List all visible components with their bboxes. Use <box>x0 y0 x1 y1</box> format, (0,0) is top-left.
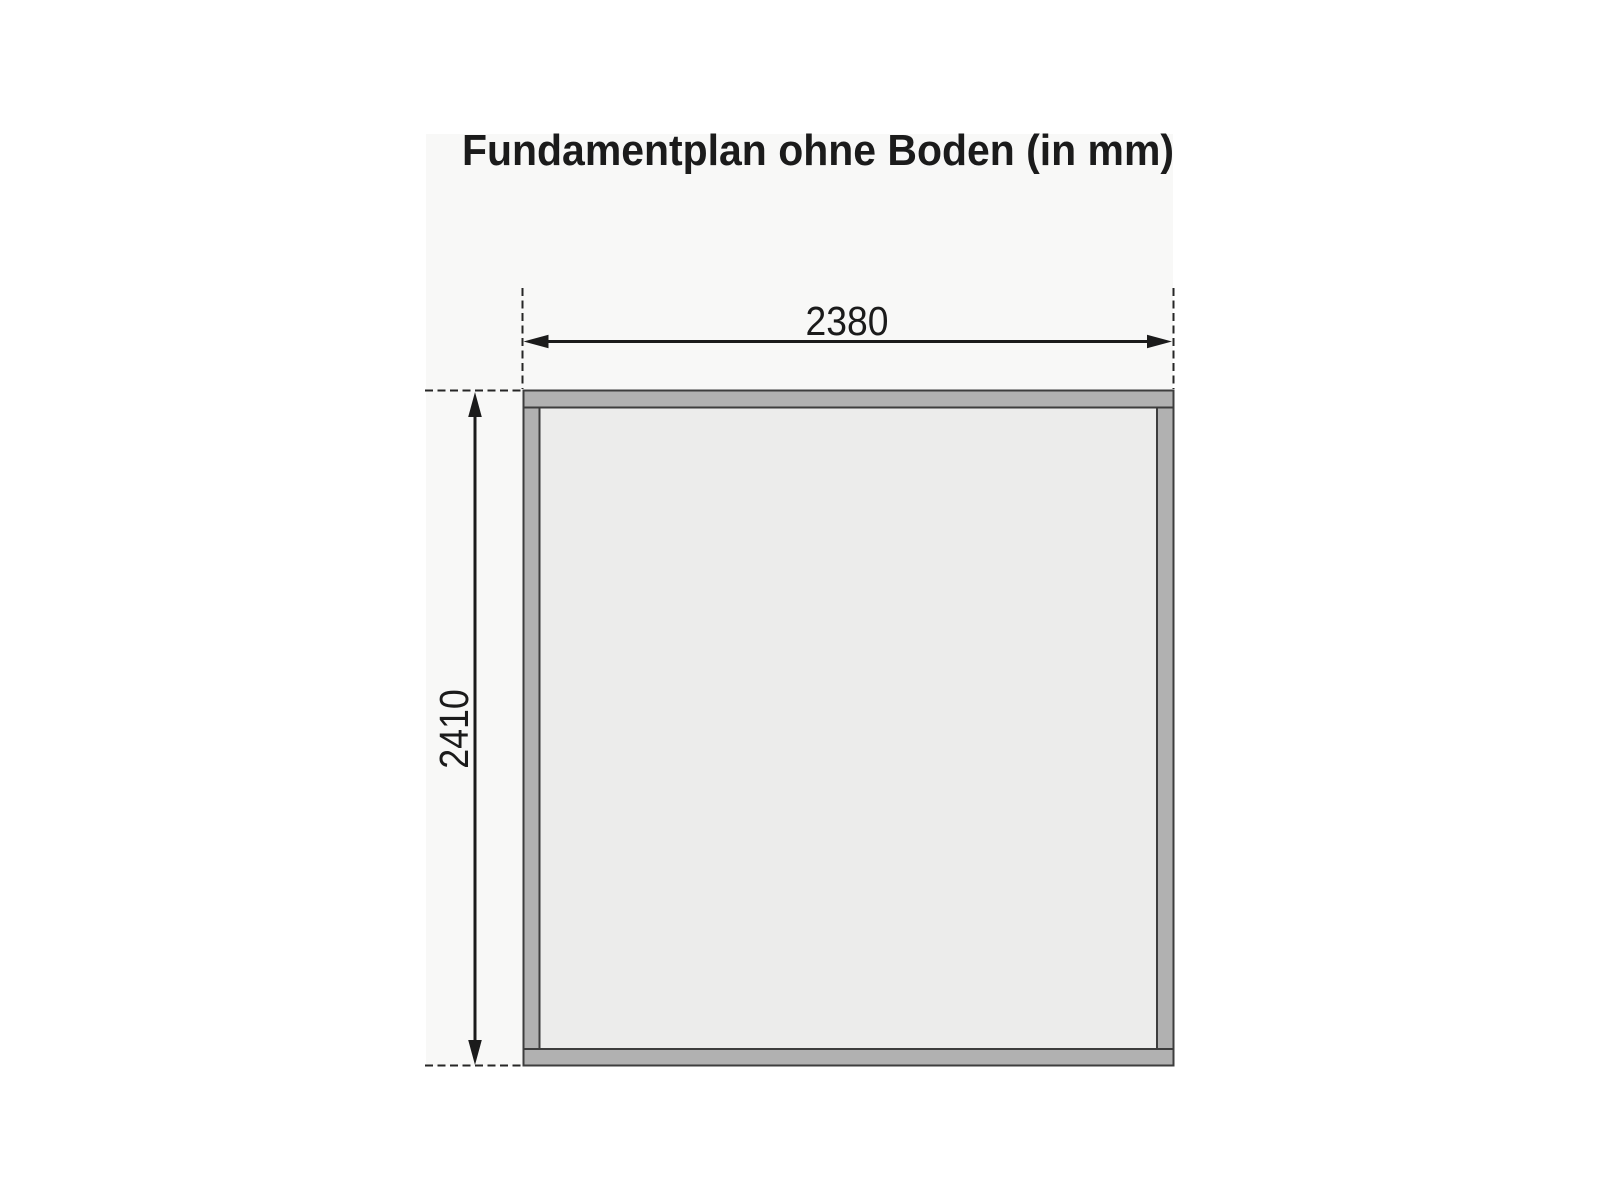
svg-text:2380: 2380 <box>806 298 889 344</box>
svg-text:2410: 2410 <box>431 689 477 769</box>
svg-text:Fundamentplan ohne Boden (in m: Fundamentplan ohne Boden (in mm) <box>462 126 1174 175</box>
